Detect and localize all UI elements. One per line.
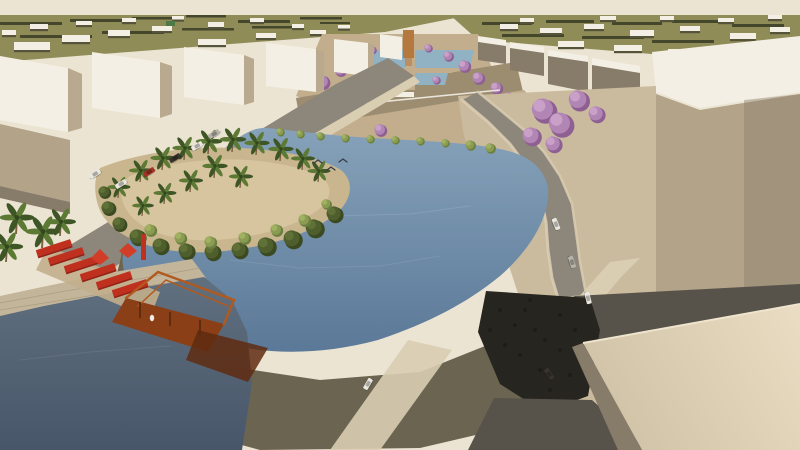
tree-highlight — [442, 140, 446, 144]
distant-building-roof — [338, 25, 350, 29]
distant-building-side — [680, 31, 700, 33]
tree-highlight — [392, 137, 396, 141]
distant-building-side — [208, 27, 224, 29]
distant-building-roof — [208, 22, 224, 27]
undefined — [166, 21, 175, 26]
hedge-row — [732, 24, 784, 27]
tree-highlight — [297, 131, 301, 135]
texture-dot — [523, 308, 527, 312]
tree-highlight — [459, 61, 465, 67]
distant-building-side — [198, 45, 226, 47]
distant-building-side — [614, 51, 642, 53]
tree-highlight — [285, 231, 294, 240]
texture-dot — [533, 328, 537, 332]
distant-building-roof — [718, 18, 734, 22]
distant-building-side — [540, 33, 562, 35]
tree-highlight — [547, 137, 555, 145]
distant-building-side — [292, 28, 304, 30]
distant-building-side — [76, 25, 92, 27]
hedge-row — [546, 20, 594, 23]
distant-building-roof — [292, 24, 304, 28]
texture-dot — [498, 308, 502, 312]
distant-building-roof — [680, 26, 700, 31]
tree-highlight — [259, 238, 268, 247]
palm-crown — [183, 146, 187, 150]
palm-crown — [141, 204, 144, 207]
tree-highlight — [233, 243, 241, 251]
tree-highlight — [367, 136, 371, 140]
palm-crown — [15, 215, 20, 220]
tree-highlight — [524, 128, 533, 137]
tree-highlight — [175, 233, 181, 239]
distant-building-roof — [730, 33, 756, 39]
distant-building-side — [152, 31, 172, 33]
tree-highlight — [322, 200, 327, 205]
distant-building-side — [584, 29, 604, 31]
palm-crown — [139, 169, 142, 172]
distant-building-side — [14, 50, 50, 52]
texture-dot — [503, 343, 507, 347]
distant-building-side — [250, 22, 264, 24]
left-slab-1 — [0, 56, 68, 132]
distant-building-roof — [614, 45, 642, 51]
distant-building-side — [660, 20, 674, 22]
distant-building-side — [62, 42, 90, 44]
distant-building-side — [520, 22, 534, 24]
texture-dot — [558, 313, 562, 317]
tree-highlight — [486, 144, 491, 149]
left-slab-2-side — [160, 62, 172, 118]
hedge-row — [672, 20, 720, 23]
distant-building-side — [630, 36, 654, 38]
tree-highlight — [299, 215, 305, 221]
distant-building-roof — [152, 26, 172, 31]
left-slab-4 — [266, 43, 316, 92]
tree-highlight — [102, 202, 109, 209]
texture-dot — [528, 298, 532, 302]
distant-building-roof — [14, 42, 50, 50]
hedge-row — [252, 26, 296, 29]
tree-highlight — [425, 45, 429, 49]
distant-building-roof — [256, 33, 276, 38]
tree-highlight — [342, 135, 346, 139]
hedge-row — [320, 22, 350, 24]
distant-building-roof — [76, 21, 92, 25]
tree-highlight — [491, 83, 497, 89]
distant-building-roof — [62, 35, 90, 42]
texture-dot — [573, 328, 577, 332]
distant-building-side — [768, 19, 782, 21]
distant-building-side — [108, 36, 130, 38]
distant-building-roof — [584, 24, 604, 29]
left-slab-2 — [92, 52, 160, 118]
left-slab-3-side — [244, 55, 254, 105]
tree-highlight — [271, 225, 277, 231]
distant-building-side — [558, 47, 584, 49]
distant-building-roof — [630, 30, 654, 36]
tree-highlight — [205, 237, 211, 243]
distant-building-roof — [108, 30, 130, 36]
distant-building-roof — [600, 16, 616, 20]
distant-building-side — [338, 29, 350, 31]
distant-building-roof — [250, 18, 264, 22]
palm-crown — [189, 179, 192, 182]
palm-crown — [239, 175, 242, 178]
left-slab-5 — [334, 39, 368, 76]
tree-highlight — [375, 125, 381, 131]
distant-building-roof — [198, 39, 226, 45]
distant-building-side — [256, 38, 276, 40]
left-slab-1-side — [68, 68, 82, 132]
tree-highlight — [433, 77, 437, 81]
tree-highlight — [180, 244, 188, 252]
hedge-row — [652, 40, 714, 43]
distant-building-roof — [660, 16, 674, 20]
distant-building-side — [718, 22, 734, 24]
distant-building-roof — [172, 16, 184, 20]
texture-dot — [513, 323, 517, 327]
tree-highlight — [444, 52, 449, 57]
palm-crown — [161, 156, 165, 160]
hedge-row — [186, 15, 226, 18]
aerial-park-rendering — [0, 0, 800, 450]
distant-building-side — [122, 22, 136, 24]
tree-highlight — [239, 233, 245, 239]
tree-highlight — [113, 218, 120, 225]
distant-building-roof — [768, 15, 782, 19]
scene-root — [0, 0, 800, 450]
hedge-row — [132, 17, 178, 20]
distant-building-roof — [500, 24, 518, 29]
hedge-row — [612, 22, 662, 25]
distant-building-side — [500, 29, 518, 31]
distant-building-roof — [558, 41, 584, 47]
distant-building-roof — [2, 30, 16, 35]
tree-highlight — [550, 114, 562, 126]
distant-building-side — [2, 35, 16, 37]
texture-dot — [538, 368, 542, 372]
distant-building-roof — [310, 30, 326, 34]
distant-building-roof — [770, 27, 790, 32]
texture-dot — [568, 373, 572, 377]
palm-crown — [231, 138, 235, 142]
texture-dot — [558, 348, 562, 352]
palm-crown — [5, 244, 9, 248]
palm-crown — [279, 147, 283, 151]
distant-building-roof — [30, 24, 48, 29]
distant-building-roof — [520, 18, 534, 22]
palm-crown — [41, 229, 46, 234]
undefined — [141, 234, 146, 260]
hedge-row — [300, 17, 342, 20]
texture-dot — [518, 353, 522, 357]
tree-highlight — [317, 133, 321, 137]
pier-person — [150, 315, 154, 321]
palm-crown — [317, 169, 320, 172]
right-building-shade — [744, 94, 800, 302]
palm-crown — [213, 164, 217, 168]
left-slab-6 — [380, 34, 402, 60]
tree-highlight — [417, 138, 421, 142]
tree-highlight — [277, 129, 281, 133]
distant-building-side — [600, 20, 616, 22]
palm-crown — [163, 191, 166, 194]
distant-building-roof — [122, 18, 136, 22]
tree-highlight — [466, 141, 471, 146]
distant-building-side — [30, 29, 48, 31]
tree-highlight — [570, 92, 580, 102]
tree-highlight — [473, 73, 479, 79]
left-slab-4-side — [316, 49, 324, 92]
distant-building-roof — [540, 28, 562, 33]
tree-highlight — [131, 230, 139, 238]
texture-dot — [488, 328, 492, 332]
undefined — [403, 30, 414, 58]
texture-dot — [548, 388, 552, 392]
palm-crown — [301, 157, 304, 160]
left-slab-3 — [184, 47, 244, 105]
palm-crown — [207, 140, 211, 144]
texture-dot — [543, 338, 547, 342]
palm-crown — [59, 220, 63, 224]
distant-building-side — [730, 39, 756, 41]
tree-highlight — [533, 100, 545, 112]
distant-building-side — [770, 32, 790, 34]
palm-crown — [255, 141, 259, 145]
tree-highlight — [154, 239, 162, 247]
park-rendering — [0, 0, 800, 450]
tree-highlight — [145, 225, 151, 231]
tree-highlight — [590, 107, 598, 115]
tree-highlight — [99, 187, 105, 193]
